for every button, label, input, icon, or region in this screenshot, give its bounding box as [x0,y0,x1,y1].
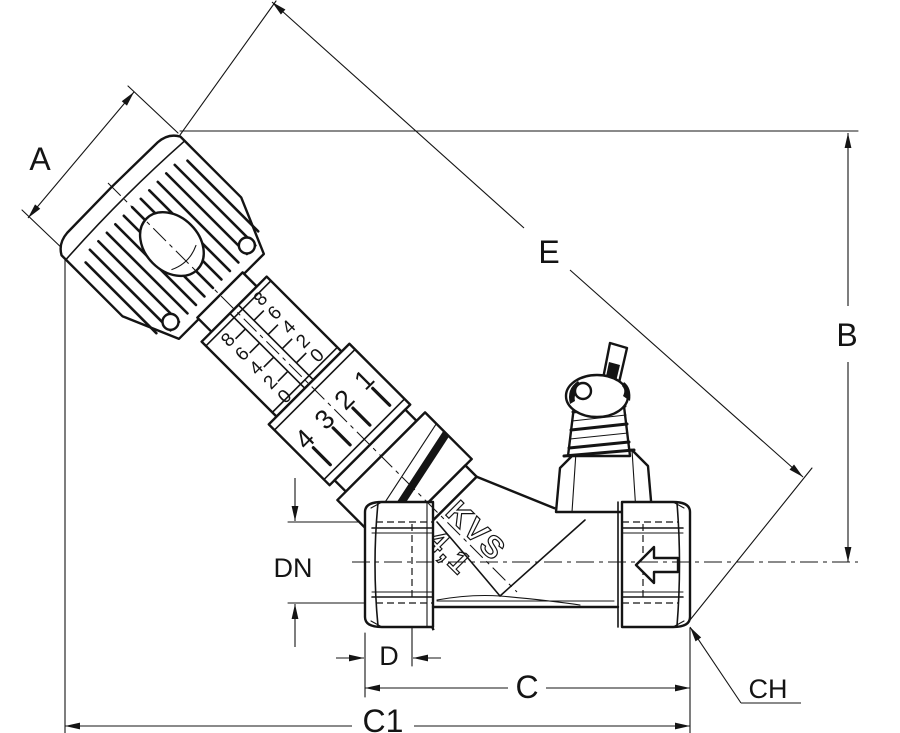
leader-ch [690,627,741,703]
dim-label-dn: DN [274,553,313,583]
dim-e-line-1 [272,2,524,228]
dim-label-a: A [29,141,51,177]
cap-pin [575,383,591,399]
dim-label-c: C [515,669,538,705]
dim-label-b: B [836,317,857,353]
dim-label-e: E [538,234,559,270]
dim-label-ch: CH [749,674,788,704]
dim-label-d: D [379,641,399,671]
ext-a-top [128,86,178,133]
dim-label-c1: C1 [363,703,404,733]
technical-drawing-canvas: 8 6 4 2 0 8 6 4 2 0 4 3 2 1 [0,0,900,733]
ext-e-top [180,1,276,135]
ext-e-bottom [690,468,812,620]
measuring-port [564,343,634,456]
balancing-valve-drawing: 8 6 4 2 0 8 6 4 2 0 4 3 2 1 [0,0,900,733]
ext-a-bottom [22,210,66,252]
